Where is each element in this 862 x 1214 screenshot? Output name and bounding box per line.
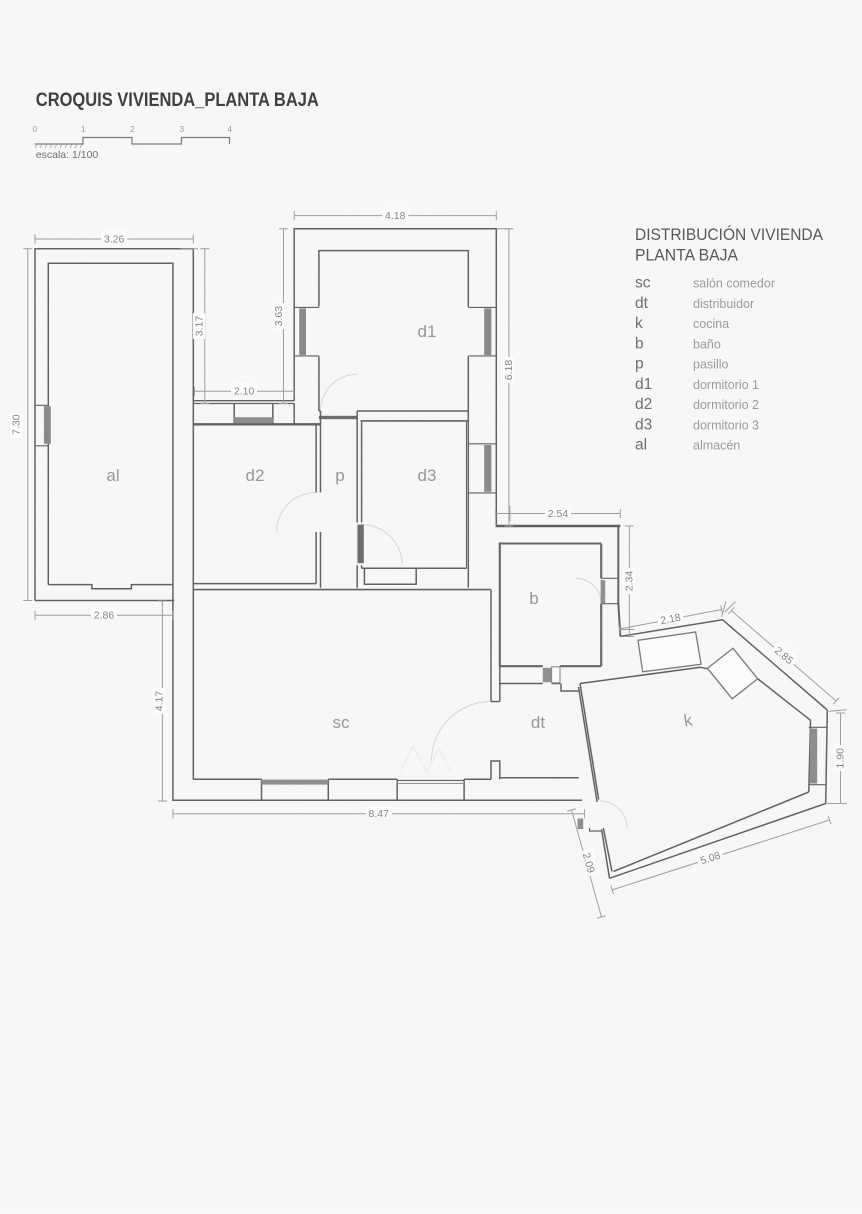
svg-text:2: 2 (130, 124, 135, 134)
svg-text:4.17: 4.17 (154, 691, 166, 712)
svg-text:al: al (106, 466, 119, 485)
svg-text:PLANTA BAJA: PLANTA BAJA (635, 246, 739, 265)
svg-text:escala: 1/100: escala: 1/100 (36, 149, 99, 161)
svg-text:dt: dt (635, 295, 649, 312)
svg-text:1.90: 1.90 (835, 748, 847, 769)
svg-text:1: 1 (81, 124, 86, 134)
svg-text:3.26: 3.26 (104, 233, 125, 245)
svg-text:cocina: cocina (693, 317, 729, 331)
svg-text:dormitorio 3: dormitorio 3 (693, 418, 759, 432)
svg-text:d3: d3 (418, 466, 437, 485)
svg-text:salón comedor: salón comedor (693, 277, 775, 291)
svg-text:baño: baño (693, 337, 721, 351)
svg-text:d1: d1 (635, 376, 652, 393)
svg-text:almacén: almacén (693, 439, 740, 453)
svg-text:2.86: 2.86 (94, 610, 115, 622)
svg-text:d2: d2 (635, 396, 652, 413)
svg-text:7.30: 7.30 (11, 414, 23, 435)
svg-text:8.47: 8.47 (369, 808, 390, 820)
svg-text:k: k (635, 315, 643, 332)
svg-text:CROQUIS VIVIENDA_PLANTA BAJA: CROQUIS VIVIENDA_PLANTA BAJA (36, 90, 319, 111)
svg-text:b: b (529, 589, 538, 608)
svg-text:pasillo: pasillo (693, 358, 728, 372)
svg-text:d2: d2 (246, 466, 265, 485)
svg-text:d3: d3 (635, 416, 652, 433)
svg-text:sc: sc (635, 275, 651, 292)
svg-text:3.17: 3.17 (194, 316, 206, 337)
svg-text:al: al (635, 437, 647, 454)
svg-text:2.34: 2.34 (624, 571, 636, 592)
svg-text:0: 0 (33, 124, 38, 134)
svg-text:p: p (335, 466, 344, 485)
svg-text:p: p (635, 356, 644, 373)
svg-text:3: 3 (179, 124, 184, 134)
svg-text:6.18: 6.18 (503, 360, 515, 381)
svg-text:DISTRIBUCIÓN VIVIENDA: DISTRIBUCIÓN VIVIENDA (635, 225, 824, 244)
svg-text:sc: sc (333, 713, 351, 732)
svg-text:dt: dt (531, 713, 545, 732)
svg-text:3.63: 3.63 (273, 306, 285, 327)
svg-text:dormitorio 2: dormitorio 2 (693, 398, 759, 412)
svg-text:2.54: 2.54 (548, 508, 569, 520)
svg-text:d1: d1 (418, 322, 437, 341)
svg-text:dormitorio 1: dormitorio 1 (693, 378, 759, 392)
svg-text:2.10: 2.10 (234, 386, 255, 398)
svg-text:4: 4 (227, 124, 232, 134)
svg-text:distribuidor: distribuidor (693, 297, 754, 311)
svg-text:4.18: 4.18 (385, 210, 406, 222)
svg-text:b: b (635, 335, 644, 352)
